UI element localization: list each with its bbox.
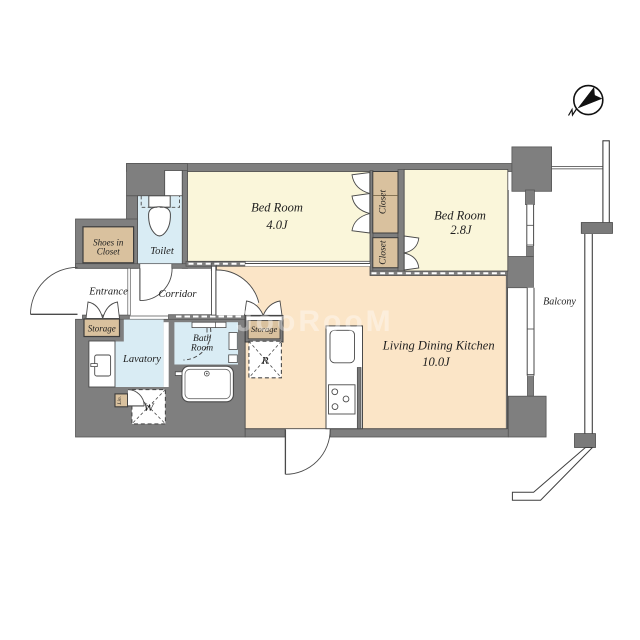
svg-text:Living Dining Kitchen: Living Dining Kitchen: [382, 339, 495, 353]
svg-text:Entrance: Entrance: [88, 287, 128, 298]
svg-text:2.8J: 2.8J: [450, 223, 473, 237]
svg-text:W: W: [144, 400, 155, 414]
svg-text:R: R: [261, 355, 269, 367]
svg-text:JooRooM: JooRooM: [236, 305, 394, 338]
svg-text:10.0J: 10.0J: [422, 355, 451, 369]
svg-text:Closet: Closet: [97, 247, 121, 257]
svg-text:Balcony: Balcony: [543, 297, 576, 308]
svg-text:Corridor: Corridor: [159, 289, 198, 300]
svg-text:Bed Room: Bed Room: [251, 201, 303, 215]
svg-text:Closet: Closet: [378, 240, 388, 265]
svg-text:Lavatory: Lavatory: [122, 354, 161, 365]
svg-text:Storage: Storage: [88, 324, 116, 334]
svg-text:4.0J: 4.0J: [266, 218, 289, 232]
svg-text:Closet: Closet: [379, 190, 389, 215]
svg-text:Toilet: Toilet: [150, 246, 175, 257]
svg-text:Room: Room: [190, 344, 213, 354]
svg-text:Bed Room: Bed Room: [434, 209, 486, 223]
svg-text:Lin.: Lin.: [117, 396, 123, 406]
svg-text:Bath: Bath: [193, 334, 211, 344]
